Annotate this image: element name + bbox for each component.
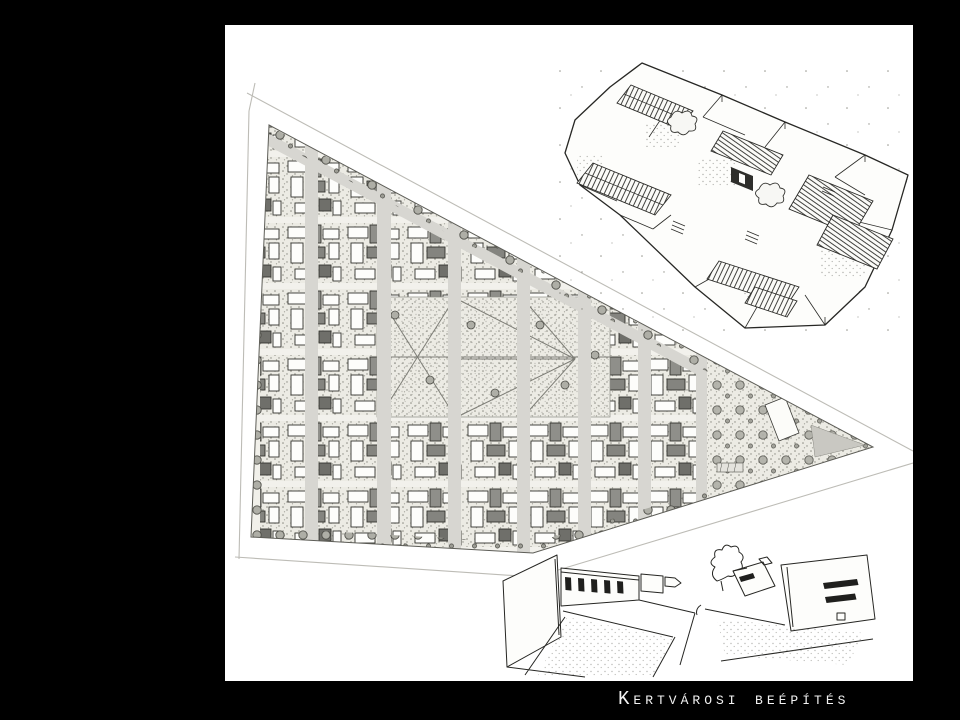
perspective-sketch-right: [697, 545, 876, 665]
parking-lot: [717, 463, 743, 472]
perspective-sketch-left: [503, 555, 695, 677]
axonometric-cluster-view: [555, 59, 908, 339]
architectural-drawing: [225, 25, 913, 681]
slide-background: { "slide": { "title": "Kertvárosi beépít…: [0, 0, 960, 720]
wooded-tip: [707, 358, 873, 499]
slide-title: Kertvárosi beépítés: [618, 685, 918, 715]
figure-canvas: [225, 25, 913, 681]
